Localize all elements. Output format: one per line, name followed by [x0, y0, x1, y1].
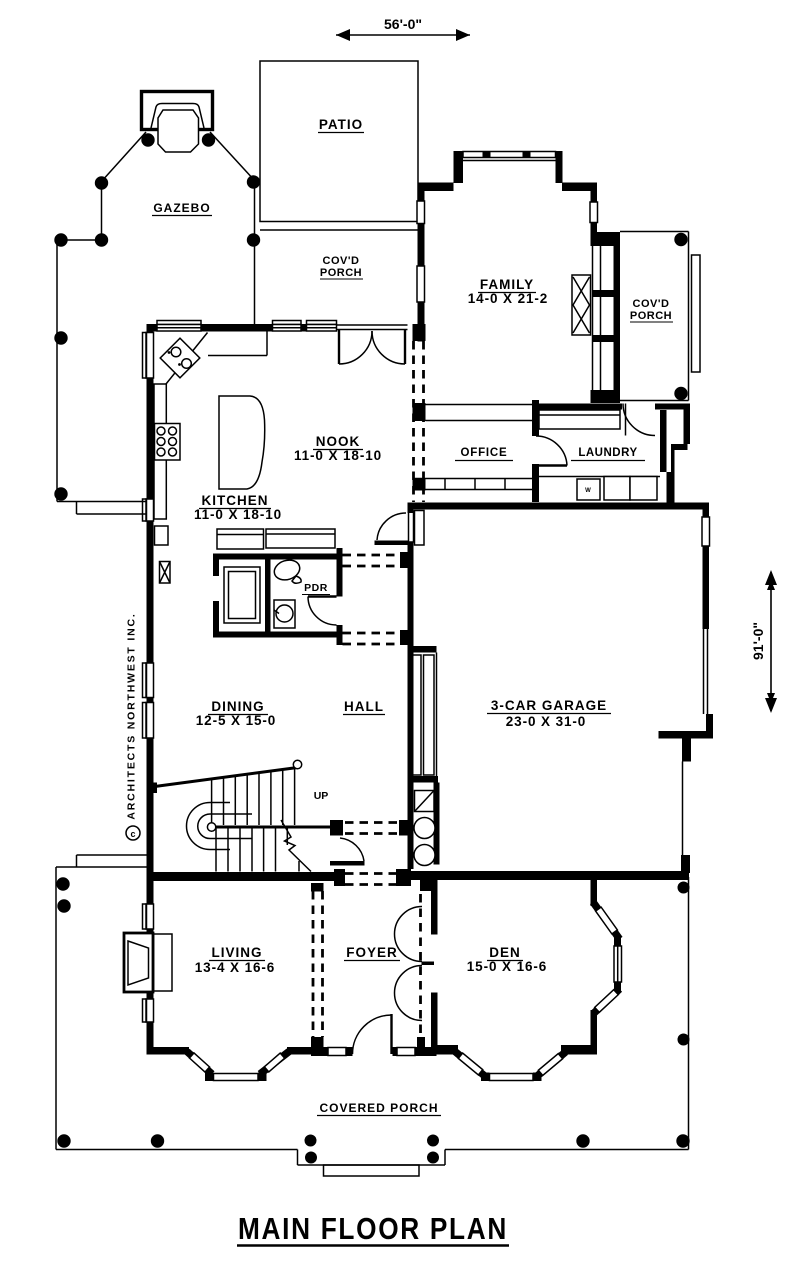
- svg-text:HALL: HALL: [344, 699, 384, 714]
- svg-text:UP: UP: [314, 790, 329, 802]
- svg-text:PORCH: PORCH: [630, 310, 672, 322]
- svg-text:COV'D: COV'D: [633, 298, 670, 310]
- svg-text:COV'D: COV'D: [323, 255, 360, 267]
- svg-text:FOYER: FOYER: [346, 945, 398, 960]
- svg-text:PATIO: PATIO: [319, 117, 363, 132]
- svg-text:13-4 X 16-6: 13-4 X 16-6: [195, 960, 275, 975]
- svg-text:W: W: [585, 488, 591, 494]
- svg-text:11-0 X 18-10: 11-0 X 18-10: [194, 507, 282, 522]
- svg-text:14-0 X 21-2: 14-0 X 21-2: [468, 291, 548, 306]
- svg-text:3-CAR GARAGE: 3-CAR GARAGE: [491, 698, 607, 713]
- svg-text:PDR: PDR: [304, 582, 328, 594]
- svg-text:DINING: DINING: [211, 699, 264, 714]
- svg-text:DEN: DEN: [489, 945, 521, 960]
- svg-text:15-0 X 16-6: 15-0 X 16-6: [467, 959, 547, 974]
- svg-text:KITCHEN: KITCHEN: [202, 493, 269, 508]
- svg-text:ARCHITECTS NORTHWEST INC.: ARCHITECTS NORTHWEST INC.: [126, 612, 138, 819]
- svg-text:NOOK: NOOK: [316, 434, 361, 449]
- svg-text:PORCH: PORCH: [320, 267, 362, 279]
- svg-text:23-0 X 31-0: 23-0 X 31-0: [506, 714, 586, 729]
- svg-text:91'-0": 91'-0": [750, 622, 766, 660]
- svg-text:OFFICE: OFFICE: [461, 447, 508, 459]
- svg-text:LIVING: LIVING: [211, 945, 262, 960]
- svg-text:COVERED PORCH: COVERED PORCH: [319, 1101, 438, 1115]
- svg-text:FAMILY: FAMILY: [480, 277, 534, 292]
- svg-text:LAUNDRY: LAUNDRY: [578, 447, 637, 459]
- svg-text:GAZEBO: GAZEBO: [153, 201, 210, 215]
- svg-text:56'-0": 56'-0": [384, 16, 422, 32]
- svg-text:MAIN FLOOR PLAN: MAIN FLOOR PLAN: [238, 1211, 508, 1246]
- svg-text:12-5 X 15-0: 12-5 X 15-0: [196, 713, 276, 728]
- svg-text:c: c: [130, 829, 135, 839]
- svg-text:11-0 X 18-10: 11-0 X 18-10: [294, 448, 382, 463]
